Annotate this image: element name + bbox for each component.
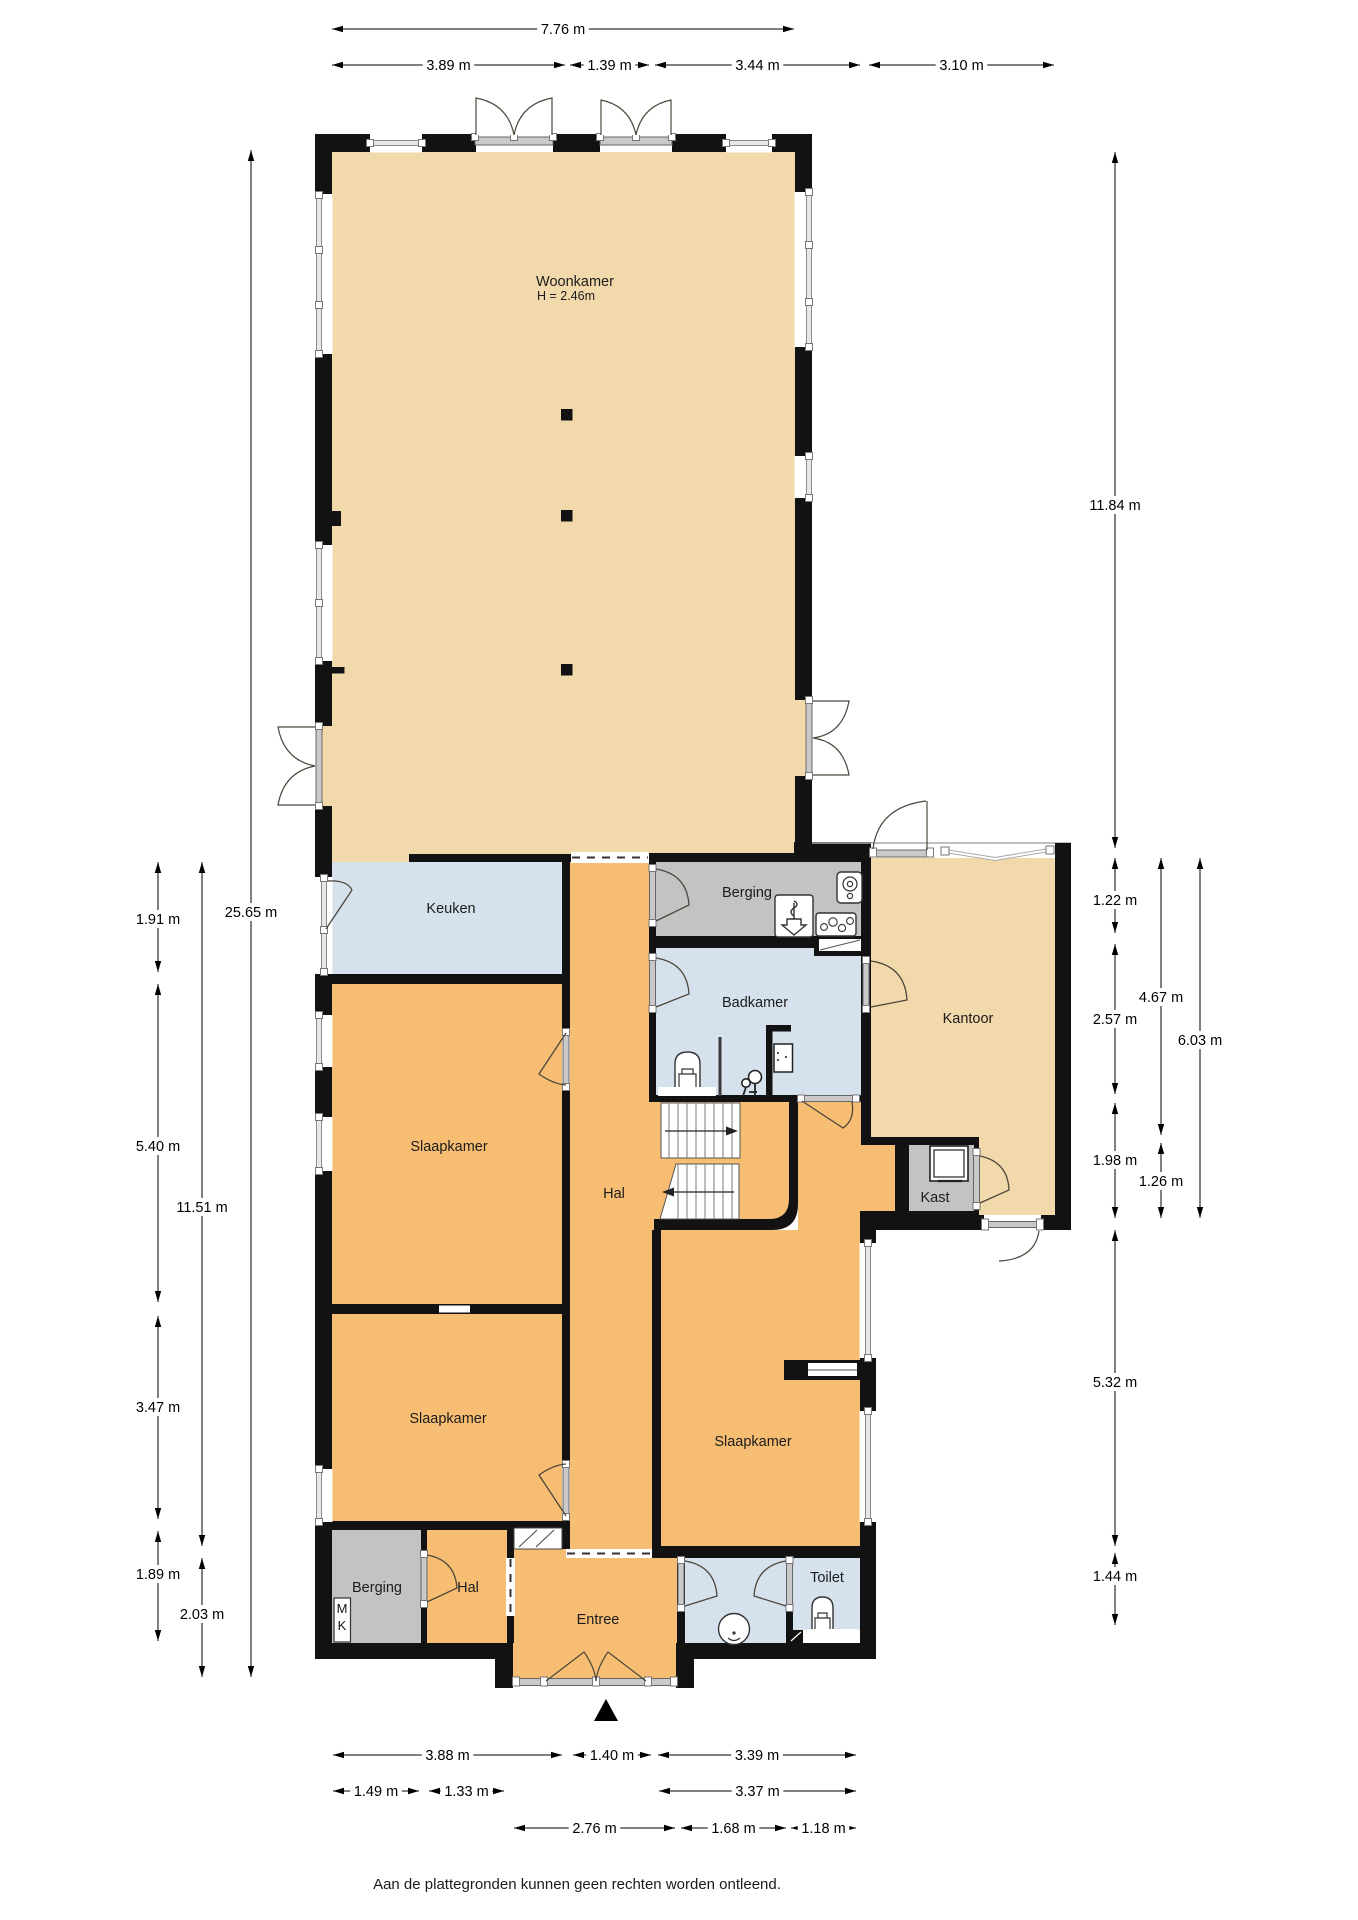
svg-text:3.37 m: 3.37 m bbox=[735, 1784, 779, 1800]
svg-text:Berging: Berging bbox=[352, 1580, 402, 1596]
svg-text:Woonkamer: Woonkamer bbox=[536, 274, 614, 290]
svg-text:Hal: Hal bbox=[457, 1580, 479, 1596]
svg-text:3.44 m: 3.44 m bbox=[735, 58, 779, 74]
svg-text:1.44 m: 1.44 m bbox=[1093, 1569, 1137, 1585]
svg-text:11.84 m: 11.84 m bbox=[1089, 498, 1140, 514]
svg-text:2.03 m: 2.03 m bbox=[180, 1607, 224, 1623]
svg-text:Kantoor: Kantoor bbox=[943, 1011, 994, 1027]
svg-text:Hal: Hal bbox=[603, 1186, 625, 1202]
svg-text:Slaapkamer: Slaapkamer bbox=[714, 1434, 792, 1450]
svg-text:Entree: Entree bbox=[577, 1612, 620, 1628]
svg-text:Berging: Berging bbox=[722, 885, 772, 901]
svg-text:11.51 m: 11.51 m bbox=[176, 1200, 227, 1216]
svg-text:1.26 m: 1.26 m bbox=[1139, 1174, 1183, 1190]
svg-text:25.65 m: 25.65 m bbox=[225, 905, 277, 921]
svg-text:1.33 m: 1.33 m bbox=[444, 1784, 488, 1800]
svg-text:1.22 m: 1.22 m bbox=[1093, 893, 1137, 909]
svg-text:Slaapkamer: Slaapkamer bbox=[410, 1139, 488, 1155]
svg-text:7.76 m: 7.76 m bbox=[541, 22, 585, 38]
svg-text:3.89 m: 3.89 m bbox=[426, 58, 470, 74]
svg-text:1.49 m: 1.49 m bbox=[354, 1784, 398, 1800]
svg-text:1.89 m: 1.89 m bbox=[136, 1567, 180, 1583]
svg-text:1.39 m: 1.39 m bbox=[587, 58, 631, 74]
svg-text:5.40 m: 5.40 m bbox=[136, 1139, 180, 1155]
svg-text:4.67 m: 4.67 m bbox=[1139, 990, 1183, 1006]
svg-text:1.98 m: 1.98 m bbox=[1093, 1153, 1137, 1169]
svg-text:Slaapkamer: Slaapkamer bbox=[409, 1411, 487, 1427]
svg-text:H = 2.46m: H = 2.46m bbox=[537, 289, 595, 303]
svg-text:Kast: Kast bbox=[920, 1190, 949, 1206]
svg-text:Keuken: Keuken bbox=[426, 901, 475, 917]
svg-text:1.91 m: 1.91 m bbox=[136, 912, 180, 928]
svg-text:1.40 m: 1.40 m bbox=[590, 1748, 634, 1764]
svg-text:2.76 m: 2.76 m bbox=[572, 1821, 616, 1837]
svg-text:3.10 m: 3.10 m bbox=[939, 58, 983, 74]
svg-text:1.18 m: 1.18 m bbox=[801, 1821, 845, 1837]
svg-text:Aan de plattegronden kunnen ge: Aan de plattegronden kunnen geen rechten… bbox=[373, 1876, 781, 1893]
svg-text:Badkamer: Badkamer bbox=[722, 995, 788, 1011]
svg-text:3.47 m: 3.47 m bbox=[136, 1400, 180, 1416]
svg-text:3.39 m: 3.39 m bbox=[735, 1748, 779, 1764]
svg-text:2.57 m: 2.57 m bbox=[1093, 1012, 1137, 1028]
svg-text:M: M bbox=[337, 1601, 348, 1616]
svg-text:K: K bbox=[338, 1618, 347, 1633]
svg-text:6.03 m: 6.03 m bbox=[1178, 1033, 1222, 1049]
svg-text:5.32 m: 5.32 m bbox=[1093, 1375, 1137, 1391]
svg-text:Toilet: Toilet bbox=[810, 1570, 844, 1586]
svg-text:3.88 m: 3.88 m bbox=[425, 1748, 469, 1764]
svg-text:1.68 m: 1.68 m bbox=[711, 1821, 755, 1837]
